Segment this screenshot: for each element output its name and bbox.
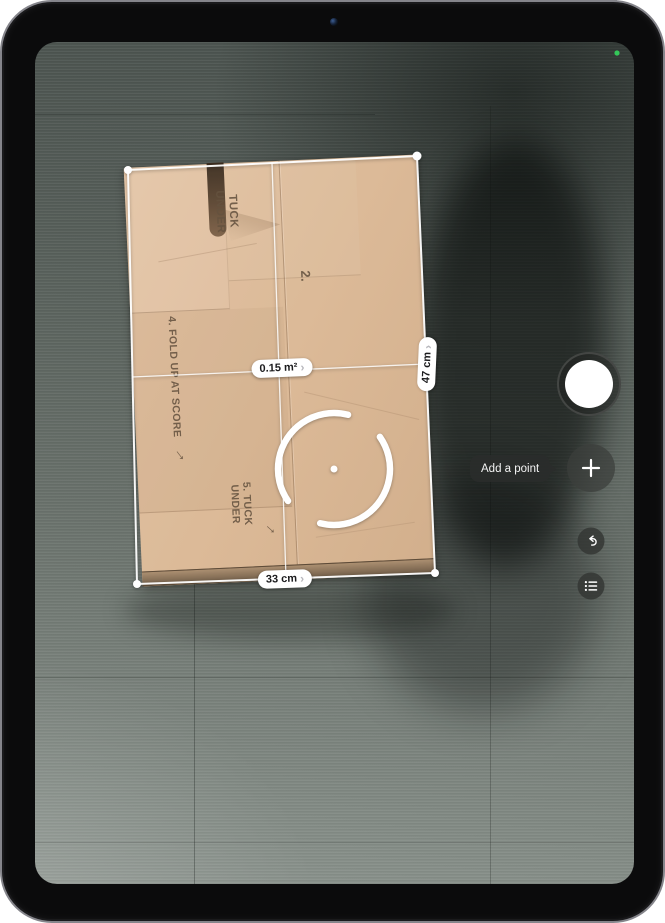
area-measurement-label[interactable]: 0.15 m² ›: [251, 358, 313, 379]
reticle-center-dot: [331, 466, 338, 473]
add-a-point-tooltip: Add a point: [470, 455, 550, 482]
chevron-right-icon: ›: [300, 572, 304, 584]
area-value: 0.15 m²: [259, 361, 297, 375]
corner-handle[interactable]: [431, 569, 439, 577]
camera-viewport[interactable]: TUCK UNDER 2. 4. FOLD UP AT SCORE → 5. T…: [35, 42, 634, 884]
ipad-frame: TUCK UNDER 2. 4. FOLD UP AT SCORE → 5. T…: [0, 0, 665, 923]
chevron-right-icon: ›: [300, 361, 304, 373]
shutter-inner-circle: [565, 360, 613, 408]
corner-handle[interactable]: [413, 152, 422, 161]
undo-button[interactable]: [578, 528, 605, 555]
bottom-edge-value: 33 cm: [266, 573, 298, 586]
right-edge-value: 47 cm: [420, 352, 433, 384]
plus-icon: [580, 457, 602, 479]
camera-active-indicator: [613, 49, 621, 57]
add-point-button[interactable]: [567, 444, 615, 492]
corner-handle[interactable]: [124, 166, 132, 174]
bottom-edge-measurement-label[interactable]: 33 cm ›: [258, 569, 313, 589]
measurement-list-button[interactable]: [578, 573, 605, 600]
chevron-right-icon: ›: [422, 345, 434, 350]
ipad-device: TUCK UNDER 2. 4. FOLD UP AT SCORE → 5. T…: [0, 0, 665, 923]
list-bullet-icon: [584, 579, 599, 594]
undo-icon: [584, 534, 599, 549]
front-camera: [330, 18, 338, 26]
right-edge-measurement-label[interactable]: 47 cm ›: [417, 337, 437, 392]
shutter-button[interactable]: [557, 352, 621, 416]
corner-handle[interactable]: [133, 580, 141, 588]
